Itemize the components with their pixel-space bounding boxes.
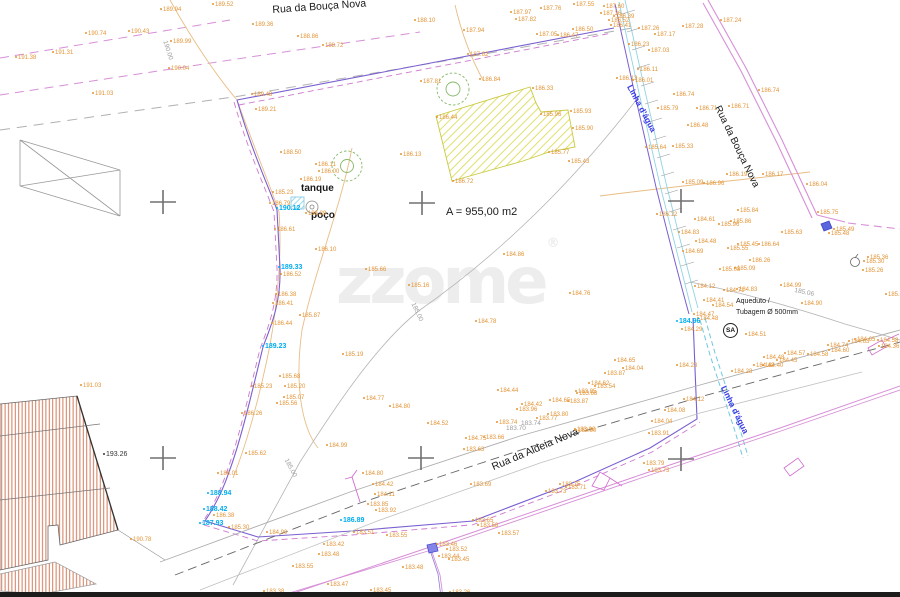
elevation-label: 183.87	[604, 371, 625, 377]
elevation-label: 184.83	[678, 230, 699, 236]
elevation-label: 186.12	[656, 212, 677, 218]
elevation-label: 186.19	[300, 177, 321, 183]
elevation-label: 186.52	[280, 272, 301, 278]
elevation-label: 189.21	[255, 107, 276, 113]
elevation-label: 186.33	[532, 86, 553, 92]
elevation-label: 185.96	[718, 222, 739, 228]
elevation-label: 187.03	[648, 48, 669, 54]
elevation-label: 183.63	[463, 447, 484, 453]
elevation-label: 185.96	[540, 112, 561, 118]
elevation-label: 184.69	[682, 249, 703, 255]
elevation-label: 186.41	[272, 301, 293, 307]
shed-outline	[20, 140, 120, 216]
elevation-label: 186.38	[213, 513, 234, 519]
elevation-label: 185.43	[568, 159, 589, 165]
elevation-label: 191.38	[15, 55, 36, 61]
elevation-label: 184.11	[374, 492, 395, 498]
elevation-label: 185.93	[570, 109, 591, 115]
survey-cross-layer	[150, 189, 694, 471]
elevation-label: 186.04	[806, 182, 827, 188]
elevation-label: 183.48	[402, 565, 423, 571]
elevation-label: 186.01	[632, 78, 653, 84]
survey-cross-icon	[150, 446, 176, 470]
elevation-label: 185.23	[272, 190, 293, 196]
elevation-label: 189.52	[212, 2, 233, 8]
elevation-label: 184.28	[731, 369, 752, 375]
elevation-label: 189.99	[170, 39, 191, 45]
elevation-label: 184.76	[569, 291, 590, 297]
elevation-label: 183.51	[353, 530, 374, 536]
aqueduct-label: Aqueduto / Tubagem Ø 500mm	[736, 296, 798, 318]
elevation-label: 186.89	[340, 518, 364, 524]
survey-cross-icon	[668, 189, 694, 213]
elevation-label: 184.04	[651, 419, 672, 425]
elevation-label: 185.75	[817, 210, 838, 216]
elevation-label: 184.83	[736, 287, 757, 293]
marker-symbols	[427, 221, 860, 553]
elevation-label: 186.74	[673, 92, 694, 98]
elevation-label: 190.43	[128, 29, 149, 35]
elevation-label: 189.33	[278, 265, 302, 271]
elevation-label: 183.52	[446, 547, 467, 553]
elevation-label: 185.64	[645, 145, 666, 151]
elevation-label: 185.30	[228, 525, 249, 531]
elevation-label: 183.57	[498, 531, 519, 537]
elevation-label: 183.65	[472, 518, 493, 524]
elevation-label: 183.73	[648, 468, 669, 474]
elevation-label: 184.42	[372, 482, 393, 488]
elevation-label: 187.62	[467, 52, 488, 58]
elevation-label: 184.52	[427, 421, 448, 427]
elevation-label: 187.76	[540, 6, 561, 12]
elevation-label: 186.71	[728, 104, 749, 110]
elevation-label: 185.66	[365, 267, 386, 273]
elevation-label: 184.44	[497, 388, 518, 394]
elevation-label: 183.47	[327, 582, 348, 588]
elevation-label: 185.48	[828, 231, 849, 237]
elevation-label: 185.19	[342, 352, 363, 358]
elevation-label: 184.65	[854, 337, 875, 343]
elevation-label: 184.65	[549, 398, 570, 404]
elevation-label: 187.94	[463, 28, 484, 34]
elevation-label: 186.13	[400, 152, 421, 158]
site-plan-canvas: zzome®	[0, 0, 900, 597]
elevation-label: 185.56	[276, 401, 297, 407]
elevation-label: 186.72	[452, 179, 473, 185]
elevation-label: 183.55	[292, 564, 313, 570]
elevation-label: 184.58	[807, 352, 828, 358]
elevation-label: 187.17	[654, 32, 675, 38]
elevation-label: 183.48	[318, 552, 339, 558]
elevation-label: 186.47	[557, 33, 578, 39]
right-road-lines	[703, 0, 900, 229]
elevation-label: 184.96	[676, 319, 700, 325]
elevation-label: 184.12	[694, 284, 715, 290]
elevation-label: 186.44	[436, 115, 457, 121]
elevation-label: 186.17	[762, 172, 783, 178]
elevation-label: 184.90	[801, 301, 822, 307]
elevation-label: 188.72	[322, 43, 343, 49]
elevation-label: 184.29	[681, 327, 702, 333]
elevation-label: 187.60	[603, 4, 624, 10]
survey-cross-icon	[150, 190, 176, 214]
elevation-label: 186.00	[318, 169, 339, 175]
elevation-label: 185.09	[682, 180, 703, 186]
elevation-label: 187.55	[573, 2, 594, 8]
elevation-label: 184.99	[326, 443, 347, 449]
elevation-label: 185.79	[657, 106, 678, 112]
elevation-label: 185.30	[863, 259, 884, 265]
elevation-label: 189.23	[262, 344, 286, 350]
elevation-label: 187.82	[515, 17, 536, 23]
elevation-label: 184.08	[664, 408, 685, 414]
elevation-label: 184.54	[712, 303, 733, 309]
elevation-label: 189.36	[252, 22, 273, 28]
elevation-label: 186.79	[269, 201, 290, 207]
elevation-label: 183.74	[521, 421, 541, 427]
elevation-label: 186.41	[610, 23, 631, 29]
elevation-label: 183.55	[386, 533, 407, 539]
elevation-label: 185.77	[548, 150, 569, 156]
elevation-label: 185.33	[672, 144, 693, 150]
elevation-label: 184.65	[614, 358, 635, 364]
elevation-label: 187.81	[420, 79, 441, 85]
elevation-label: 183.85	[575, 389, 596, 395]
elevation-label: 189.48	[251, 92, 272, 98]
elevation-label: 187.97	[510, 10, 531, 16]
elevation-label: 186.61	[274, 227, 295, 233]
elevation-label: 184.48	[763, 355, 784, 361]
elevation-label: 186.74	[758, 88, 779, 94]
elevation-label: 186.26	[749, 258, 770, 264]
elevation-label: 186.64	[758, 242, 779, 248]
bottom-bar	[0, 592, 900, 597]
elevation-label: 186.23	[628, 42, 649, 48]
elevation-label: 184.77	[363, 396, 384, 402]
elevation-label: 184.51	[745, 332, 766, 338]
elevation-label: 183.66	[483, 435, 504, 441]
elevation-label: 186.11	[315, 162, 336, 168]
elevation-label: 190.78	[130, 537, 151, 543]
elevation-label: 186.11	[637, 67, 658, 73]
elevation-label: 190.04	[168, 66, 189, 72]
elevation-label: 193.26	[103, 452, 127, 458]
parcel-area-label: A = 955,00 m2	[446, 206, 517, 218]
elevation-label: 188.94	[207, 491, 231, 497]
elevation-label: 188.50	[280, 150, 301, 156]
elevation-label: 184.12	[683, 397, 704, 403]
elevation-label: 184.62	[588, 381, 609, 387]
elevation-label: 186.96	[703, 181, 724, 187]
aqueduct-label-line1: Aqueduto /	[736, 296, 798, 307]
elevation-label: 185.62	[245, 451, 266, 457]
elevation-label: 186.39	[305, 211, 326, 217]
elevation-label: 183.42	[323, 542, 344, 548]
elevation-label: 186.84	[479, 77, 500, 83]
elevation-label: 185.20	[284, 384, 305, 390]
elevation-label: 191.31	[52, 50, 73, 56]
elevation-label: 188.86	[297, 34, 318, 40]
elevation-label: 183.92	[375, 508, 396, 514]
elevation-label: 183.73	[545, 489, 566, 495]
survey-cross-icon	[408, 446, 434, 470]
elevation-label: 185.09	[734, 266, 755, 272]
elevation-label: 184.57	[784, 351, 805, 357]
elevation-label: 190.74	[85, 31, 106, 37]
elevation-label: 184.23	[676, 363, 697, 369]
elevation-label: 186.38	[275, 292, 296, 298]
elevation-label: 183.75	[559, 482, 580, 488]
elevation-label: 187.28	[682, 24, 703, 30]
survey-cross-icon	[409, 191, 435, 215]
elevation-label: 183.91	[648, 431, 669, 437]
elevation-label: 183.79	[643, 461, 664, 467]
elevation-label: 183.45	[448, 557, 469, 563]
elevation-label: 184.78	[475, 319, 496, 325]
elevation-label: 185.28	[885, 292, 900, 298]
elevation-label: 183.90	[575, 428, 596, 434]
elevation-label: 191.03	[80, 383, 101, 389]
elevation-label: 186.44	[271, 321, 292, 327]
elevation-label: 187.24	[720, 18, 741, 24]
elevation-label: 186.01	[217, 471, 238, 477]
elevation-label: 185.87	[299, 313, 320, 319]
elevation-label: 189.94	[160, 7, 181, 13]
aqueduct-label-line2: Tubagem Ø 500mm	[736, 307, 798, 318]
elevation-label: 184.48	[695, 239, 716, 245]
building-hatched	[0, 396, 118, 594]
yellow-hatched-area	[436, 87, 575, 181]
elevation-label: 183.69	[470, 482, 491, 488]
elevation-label: 185.23	[251, 384, 272, 390]
elevation-label: 185.90	[572, 126, 593, 132]
elevation-label: 185.26	[862, 268, 883, 274]
elevation-label: 184.80	[389, 404, 410, 410]
elevation-label: 188.10	[414, 18, 435, 24]
elevation-label: 186.26	[241, 411, 262, 417]
elevation-label: 186.48	[687, 123, 708, 129]
elevation-label: 186.19	[726, 172, 747, 178]
elevation-label: 183.96	[516, 407, 537, 413]
elevation-label: 184.60	[828, 348, 849, 354]
elevation-label: 184.80	[362, 471, 383, 477]
elevation-label: 185.84	[737, 208, 758, 214]
elevation-label: 185.16	[408, 283, 429, 289]
elevation-label: 187.05	[536, 32, 557, 38]
elevation-label: 185.55	[727, 246, 748, 252]
elevation-label: 184.61	[694, 217, 715, 223]
tank-label: tanque	[301, 183, 334, 194]
elevation-label: 191.03	[92, 91, 113, 97]
elevation-label: 183.80	[547, 412, 568, 418]
elevation-label: 187.93	[199, 521, 223, 527]
elevation-label: 185.68	[279, 374, 300, 380]
elevation-label: 185.63	[781, 230, 802, 236]
elevation-label: 184.42	[753, 363, 774, 369]
elevation-label: 184.90	[266, 530, 287, 536]
elevation-label: 186.10	[315, 247, 336, 253]
elevation-label: 184.36	[878, 344, 899, 350]
elevation-label: 186.71	[696, 106, 717, 112]
elevation-label: 184.86	[503, 252, 524, 258]
sa-manhole-badge: SA	[723, 323, 738, 338]
